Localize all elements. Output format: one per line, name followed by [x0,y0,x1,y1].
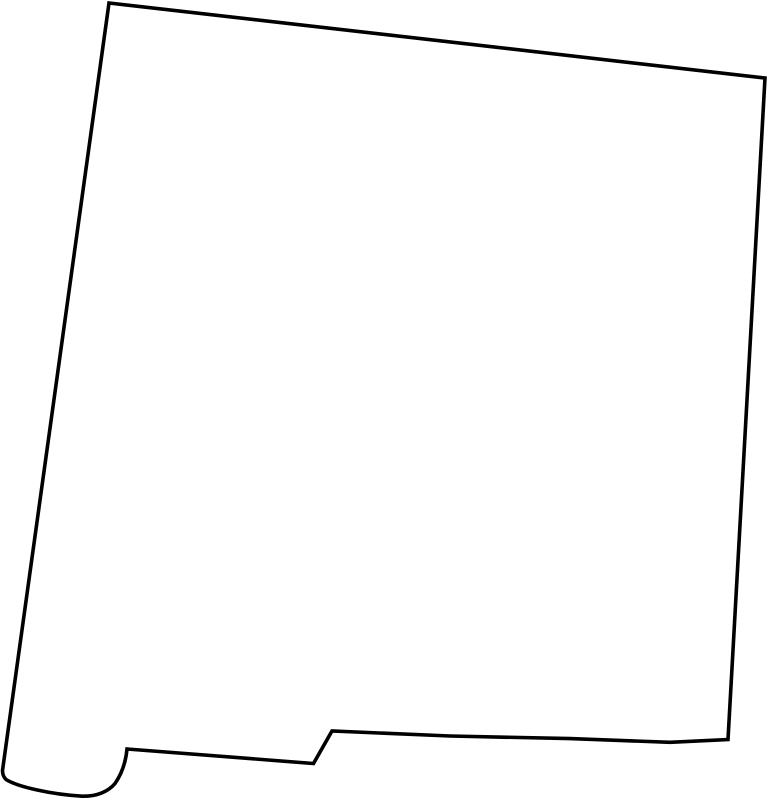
map-canvas [0,0,769,800]
state-outline-path [3,3,766,796]
new-mexico-map [0,0,769,800]
